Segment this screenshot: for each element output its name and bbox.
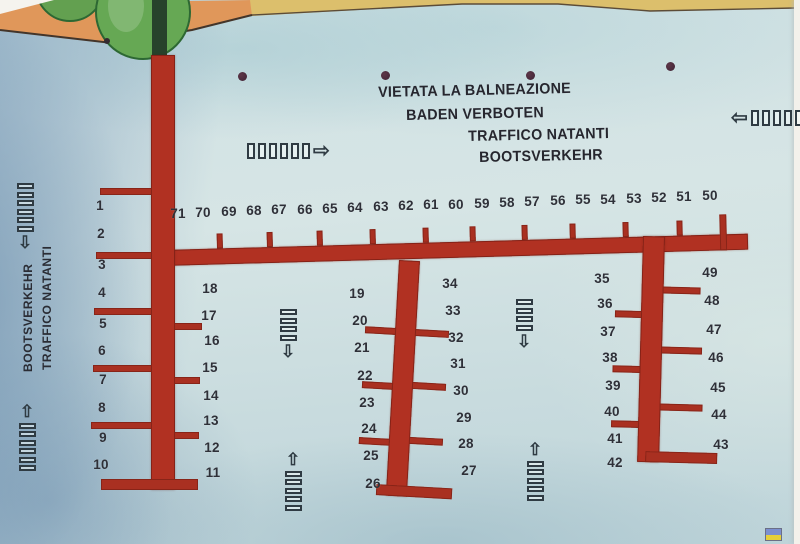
berth-finger: [91, 422, 152, 429]
berth-finger: [415, 329, 449, 338]
berth-number-41: 41: [607, 431, 622, 446]
direction-arrow-down: ⇩: [281, 343, 295, 360]
berth-number-10: 10: [93, 457, 108, 472]
berth-number-71: 71: [170, 206, 185, 221]
berth-number-43: 43: [713, 437, 728, 452]
berth-number-62: 62: [398, 198, 413, 213]
berth-number-15: 15: [202, 360, 217, 375]
lane-bar: [527, 495, 544, 501]
berth-number-3: 3: [98, 257, 106, 272]
mooring-stub: [422, 228, 428, 243]
berth-number-55: 55: [575, 192, 590, 207]
berth-number-11: 11: [206, 465, 221, 480]
lane-bar: [773, 110, 781, 126]
berth-number-13: 13: [203, 413, 218, 428]
shoreline-land: [0, 0, 800, 72]
photo-white-edge: [794, 0, 800, 544]
berth-finger: [612, 365, 640, 373]
berth-finger: [663, 287, 701, 295]
berth-finger: [174, 432, 199, 439]
lane-bar: [516, 308, 533, 314]
direction-arrow-right: ⇨: [313, 141, 330, 161]
berth-number-56: 56: [550, 193, 565, 208]
berth-number-28: 28: [458, 436, 473, 451]
marker-dot-4: [666, 62, 675, 71]
berth-number-31: 31: [450, 356, 465, 371]
marker-dot-1: [238, 72, 247, 81]
lane-bar: [258, 143, 266, 159]
lane-bar: [285, 488, 302, 494]
berth-number-23: 23: [359, 395, 374, 410]
berth-number-46: 46: [708, 350, 723, 365]
lane-bar: [280, 335, 297, 341]
marker-dot-3: [526, 71, 535, 80]
mooring-stub: [217, 233, 223, 248]
berth-number-5: 5: [99, 316, 107, 331]
berth-number-70: 70: [195, 205, 210, 220]
lane-bar: [19, 431, 36, 437]
berth-number-27: 27: [461, 463, 476, 478]
berth-number-47: 47: [706, 322, 721, 337]
berth-number-54: 54: [600, 192, 615, 207]
berth-number-21: 21: [354, 340, 369, 355]
berth-number-52: 52: [651, 190, 666, 205]
notice-line-3: TRAFFICO NATANTI: [468, 125, 609, 145]
traffic-lane-left-icon: ⇦: [731, 108, 800, 128]
marker-dot-2: [381, 71, 390, 80]
side-label-traffico-natanti: TRAFFICO NATANTI: [40, 256, 54, 370]
broken-image-artifact: [765, 528, 782, 541]
mooring-stub: [521, 225, 527, 240]
pier-end-cap: [101, 479, 198, 490]
berth-number-49: 49: [702, 265, 717, 280]
berth-number-60: 60: [448, 197, 463, 212]
lane-bar: [285, 479, 302, 485]
lane-bar: [291, 143, 299, 159]
lane-bar: [795, 110, 800, 126]
berth-number-40: 40: [604, 404, 619, 419]
berth-number-24: 24: [361, 421, 376, 436]
lane-bar: [302, 143, 310, 159]
berth-number-14: 14: [203, 388, 218, 403]
pier-west: [151, 55, 175, 490]
lane-bar: [516, 299, 533, 305]
direction-arrow-up: ⇧: [20, 403, 34, 420]
berth-number-29: 29: [456, 410, 471, 425]
direction-arrow-down: ⇩: [18, 234, 32, 251]
berth-number-48: 48: [704, 293, 719, 308]
mooring-stub: [317, 231, 323, 246]
traffic-lane-down-icon: ⇩: [512, 299, 536, 350]
berth-number-32: 32: [448, 330, 463, 345]
lane-bar: [285, 496, 302, 502]
berth-finger: [659, 403, 702, 411]
berth-finger: [412, 382, 446, 391]
lane-bar: [19, 465, 36, 471]
berth-number-38: 38: [602, 350, 617, 365]
berth-number-30: 30: [453, 383, 468, 398]
land-sand: [250, 0, 800, 16]
berth-number-35: 35: [594, 271, 609, 286]
lane-bar: [17, 200, 34, 206]
lane-bar: [527, 486, 544, 492]
berth-number-67: 67: [271, 202, 286, 217]
traffic-lane-up-icon: ⇧: [523, 441, 547, 501]
lane-bar: [269, 143, 277, 159]
direction-arrow-down: ⇩: [517, 333, 531, 350]
lane-bar: [17, 226, 34, 232]
berth-finger: [174, 323, 202, 330]
berth-number-63: 63: [373, 199, 388, 214]
berth-finger: [409, 437, 443, 446]
berth-number-18: 18: [202, 281, 217, 296]
lane-bar: [527, 478, 544, 484]
tree-trunk: [152, 0, 167, 58]
mooring-stub: [267, 232, 273, 247]
berth-number-37: 37: [600, 324, 615, 339]
lane-bar: [516, 316, 533, 322]
berth-number-66: 66: [297, 202, 312, 217]
mooring-stub: [569, 223, 575, 238]
berth-number-58: 58: [499, 195, 514, 210]
berth-finger: [365, 326, 396, 335]
lane-bar: [247, 143, 255, 159]
lane-bar: [17, 192, 34, 198]
lane-bar: [762, 110, 770, 126]
shore-dot: [104, 38, 110, 44]
lane-bar: [516, 325, 533, 331]
lane-bar: [19, 457, 36, 463]
side-label-bootsverkehr: BOOTSVERKEHR: [21, 268, 35, 372]
berth-finger: [611, 420, 639, 428]
lane-bar: [527, 461, 544, 467]
berth-number-4: 4: [98, 285, 106, 300]
berth-number-6: 6: [98, 343, 106, 358]
pier-middle: [386, 260, 420, 497]
notice-line-1: VIETATA LA BALNEAZIONE: [378, 80, 571, 101]
berth-number-9: 9: [99, 430, 107, 445]
berth-number-68: 68: [246, 203, 261, 218]
lane-bar: [280, 309, 297, 315]
berth-number-7: 7: [99, 372, 107, 387]
berth-number-36: 36: [597, 296, 612, 311]
berth-number-33: 33: [445, 303, 460, 318]
berth-finger: [661, 347, 702, 355]
berth-number-39: 39: [605, 378, 620, 393]
traffic-lane-down-icon: ⇩: [276, 309, 300, 360]
notice-line-4: BOOTSVERKEHR: [479, 146, 603, 166]
berth-number-12: 12: [204, 440, 219, 455]
pier-east: [637, 236, 665, 462]
berth-finger: [93, 365, 152, 372]
lane-bar: [784, 110, 792, 126]
mooring-stub: [676, 220, 682, 235]
pier-end-cap: [645, 451, 717, 464]
lane-bar: [280, 318, 297, 324]
mooring-stub: [622, 222, 628, 237]
traffic-lane-up-icon: ⇧: [281, 451, 305, 511]
berth-number-61: 61: [423, 197, 438, 212]
berth-number-16: 16: [204, 333, 219, 348]
lane-bar: [751, 110, 759, 126]
berth-number-50: 50: [702, 188, 717, 203]
berth-finger: [359, 437, 390, 446]
lane-bar: [280, 326, 297, 332]
berth-number-26: 26: [365, 476, 380, 491]
lane-bar: [19, 448, 36, 454]
berth-number-34: 34: [442, 276, 457, 291]
berth-number-2: 2: [97, 226, 105, 241]
berth-finger: [615, 310, 642, 318]
berth-finger: [174, 377, 200, 384]
berth-number-25: 25: [363, 448, 378, 463]
lane-bar: [527, 469, 544, 475]
berth-number-53: 53: [626, 191, 641, 206]
berth-number-19: 19: [349, 286, 364, 301]
lane-bar: [19, 440, 36, 446]
berth-number-65: 65: [322, 201, 337, 216]
berth-number-1: 1: [96, 198, 104, 213]
lane-bar: [285, 505, 302, 511]
berth-number-59: 59: [474, 196, 489, 211]
lane-bar: [19, 423, 36, 429]
berth-number-22: 22: [357, 368, 372, 383]
direction-arrow-up: ⇧: [528, 441, 542, 458]
mooring-stub: [469, 226, 475, 241]
berth-number-69: 69: [221, 204, 236, 219]
berth-number-42: 42: [607, 455, 622, 470]
lane-bar: [280, 143, 288, 159]
berth-finger: [94, 308, 152, 315]
berth-number-8: 8: [98, 400, 106, 415]
traffic-lane-down-icon: ⇩: [13, 183, 37, 251]
berth-number-57: 57: [524, 194, 539, 209]
berth-number-20: 20: [352, 313, 367, 328]
pier-end-post: [719, 214, 727, 250]
mooring-stub: [370, 229, 376, 244]
artifact-bottom-half: [766, 535, 781, 541]
berth-number-45: 45: [710, 380, 725, 395]
pier-end-cap: [376, 484, 452, 499]
berth-number-51: 51: [676, 189, 691, 204]
notice-line-2: BADEN VERBOTEN: [406, 104, 544, 124]
berth-finger: [100, 188, 152, 195]
berth-number-17: 17: [201, 308, 216, 323]
traffic-lane-up-icon: ⇧: [15, 403, 39, 471]
direction-arrow-left: ⇦: [731, 108, 748, 128]
berth-number-44: 44: [711, 407, 726, 422]
traffic-lane-right-icon: ⇨: [247, 141, 330, 161]
lane-bar: [285, 471, 302, 477]
lane-bar: [17, 217, 34, 223]
direction-arrow-up: ⇧: [286, 451, 300, 468]
berth-number-64: 64: [347, 200, 362, 215]
lane-bar: [17, 209, 34, 215]
marina-berth-map: VIETATA LA BALNEAZIONEBADEN VERBOTENTRAF…: [0, 0, 800, 544]
lane-bar: [17, 183, 34, 189]
